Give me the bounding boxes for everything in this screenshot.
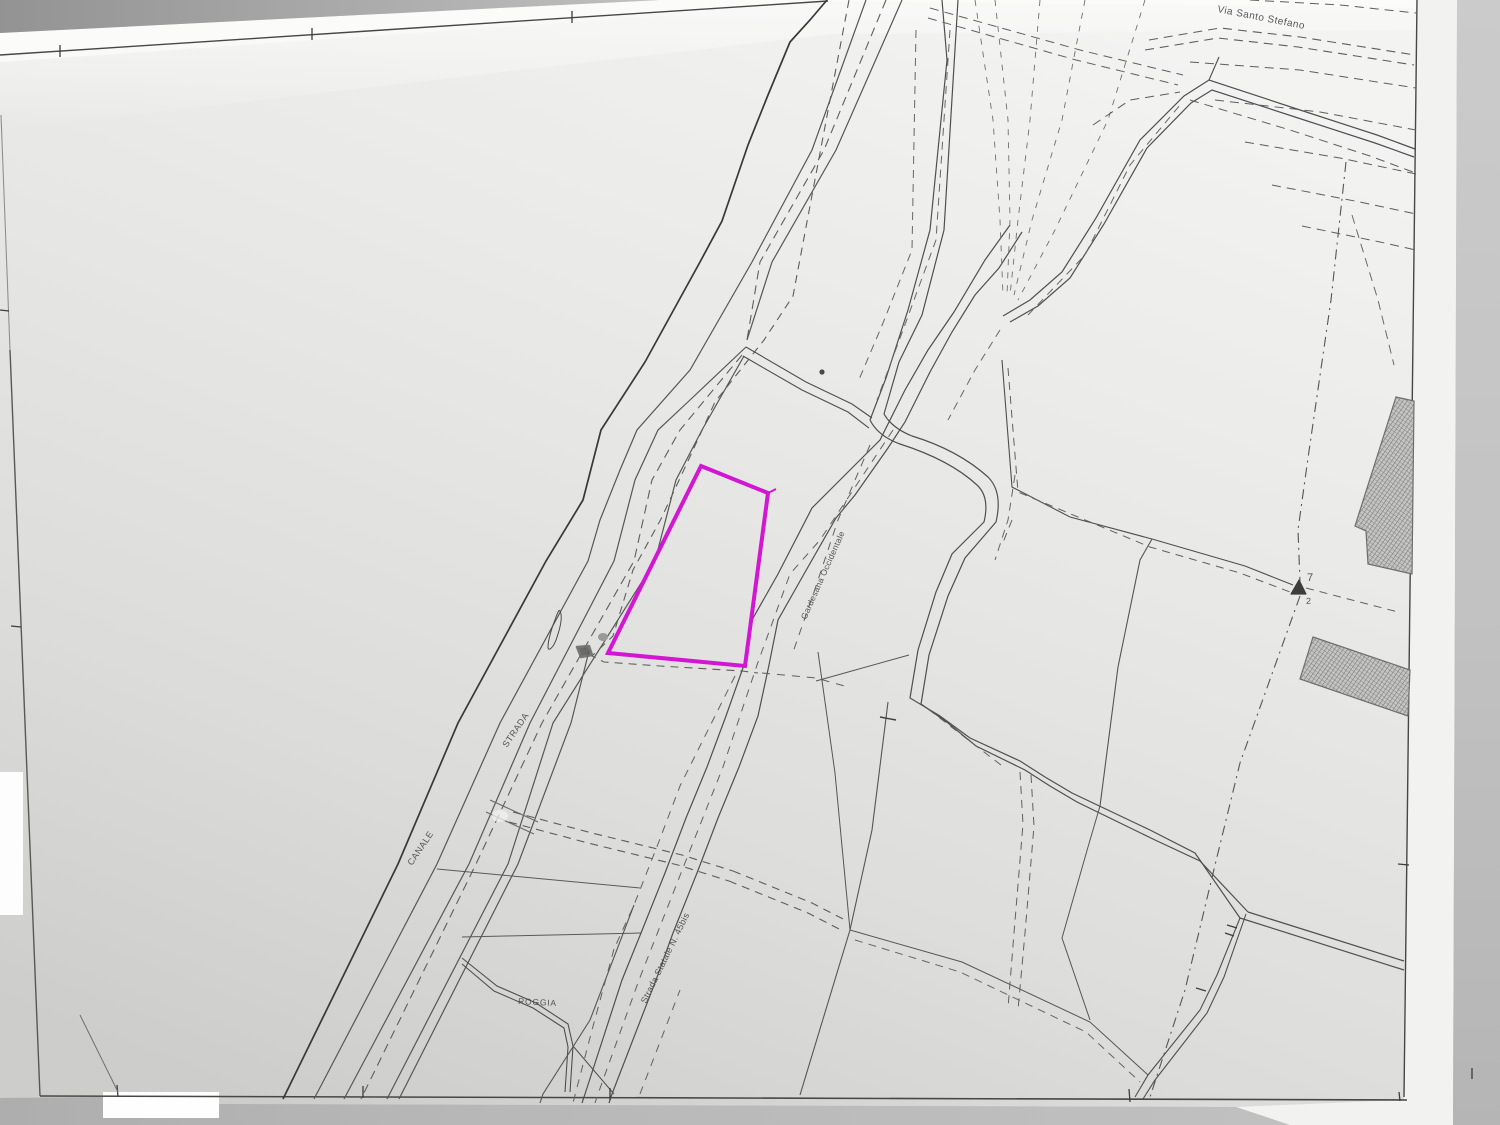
- svg-text:7: 7: [1307, 572, 1313, 584]
- svg-text:2: 2: [1306, 596, 1311, 606]
- svg-text:ROGGIA: ROGGIA: [518, 996, 557, 1008]
